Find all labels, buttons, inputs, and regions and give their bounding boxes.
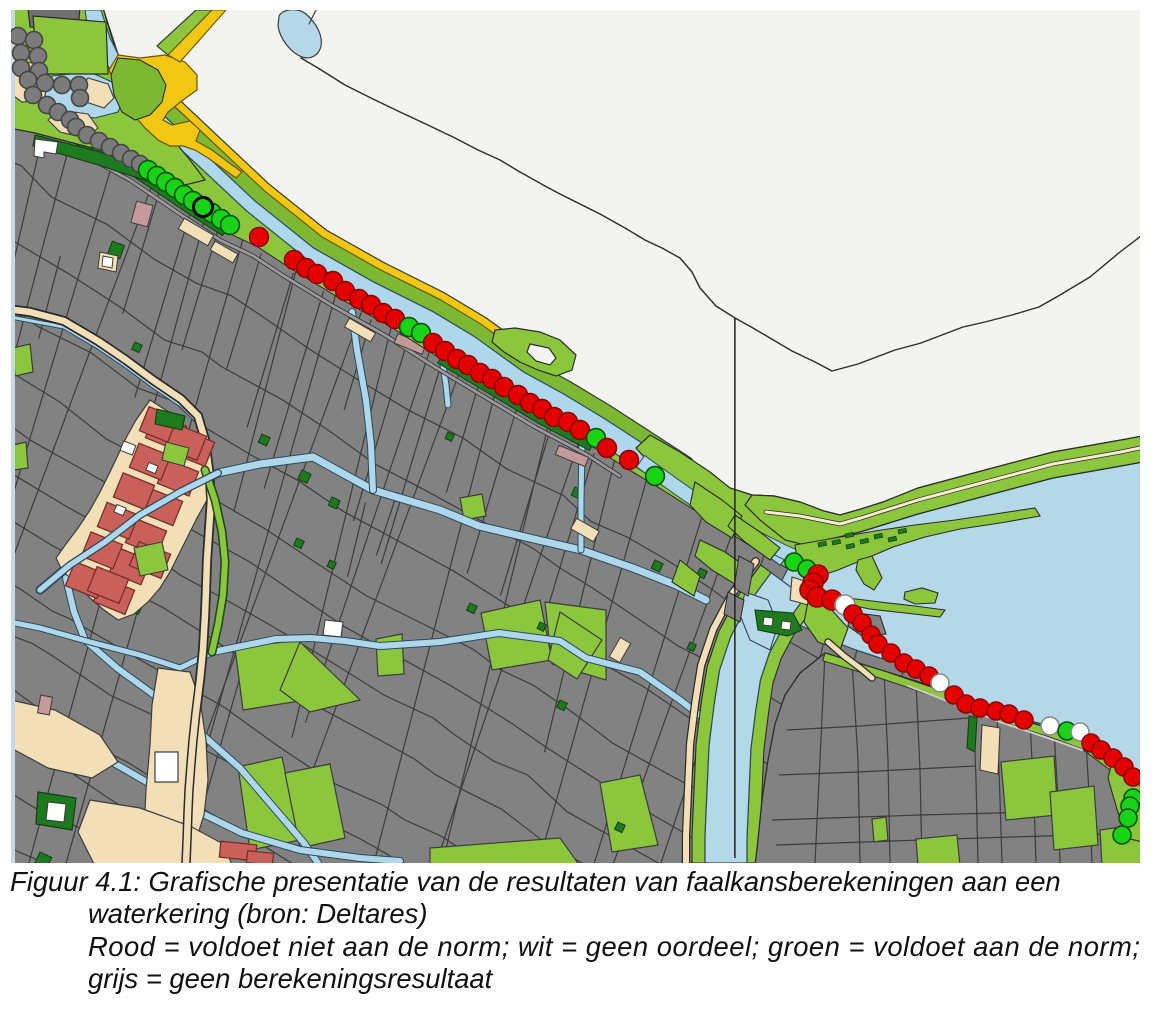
svg-text:grijs = geen berekeningsresult: grijs = geen berekeningsresultaat — [88, 963, 494, 994]
svg-text:Figuur 4.1: Grafische presenta: Figuur 4.1: Grafische presentatie van de… — [10, 866, 1061, 897]
svg-text:waterkering (bron: Deltares): waterkering (bron: Deltares) — [88, 898, 427, 929]
svg-text:Rood = voldoet niet aan de nor: Rood = voldoet niet aan de norm; wit = g… — [88, 931, 1140, 962]
